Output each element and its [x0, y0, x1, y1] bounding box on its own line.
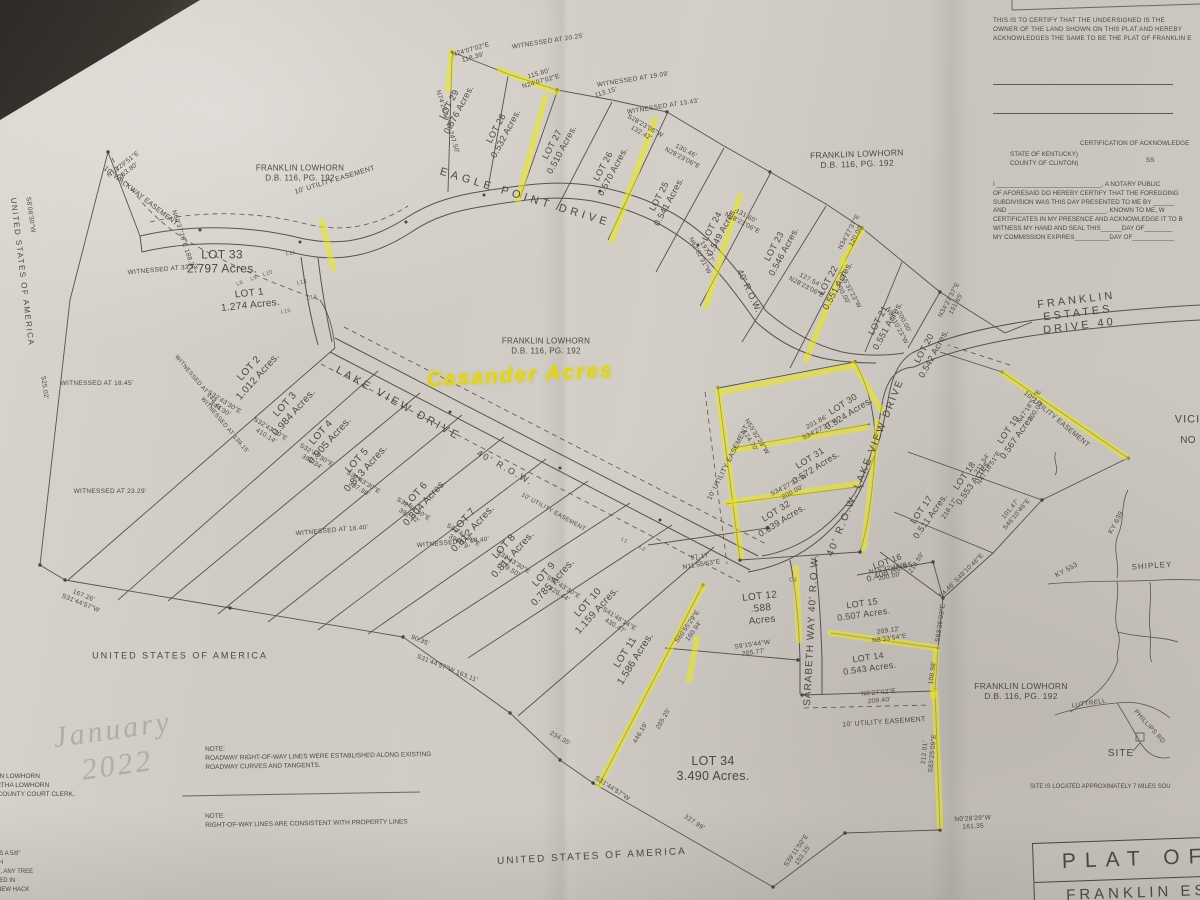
adjoiner-label-franklin-lowhorn: FRANKLIN LOWHORN D.B. 116, PG. 192 [502, 336, 590, 355]
adjoiner-label-franklin-lowhorn: FRANKLIN LOWHORN D.B. 116, PG. 192 [974, 681, 1068, 701]
note-roadway-row: NOTE: ROADWAY RIGHT-OF-WAY LINES WERE ES… [205, 741, 432, 773]
road-lines [140, 183, 1200, 695]
owner-certification-text: THIS IS TO CERTIFY THAT THE UNDERSIGNED … [993, 17, 1200, 44]
adjoiner-label-usa-southwest: UNITED STATES OF AMERICA [92, 651, 268, 662]
bearing-label: N6'27'02"E 209.40' [861, 688, 897, 707]
note-row-property: NOTE: RIGHT-OF-WAY LINES ARE CONSISTENT … [205, 808, 408, 830]
site-location-note: SITE IS LOCATED APPROXIMATELY 7 MILES SO… [1030, 783, 1200, 792]
plat-linework [0, 0, 1200, 900]
vicinity-subtitle: NO [1180, 435, 1196, 447]
lot-label-12: LOT 12.588 Acres [742, 589, 781, 628]
witness-label: WITNESSED AT 23.29' [74, 488, 147, 496]
signature-line [993, 113, 1173, 114]
lot-label-33: LOT 332.797 Acres. [187, 248, 257, 277]
title-plat-of: PLAT OF [1033, 837, 1200, 883]
plat-photo: LOT 11.274 Acres. LOT 21.012 Acres. LOT … [0, 0, 1200, 900]
adjoiner-label-franklin-lowhorn: FRANKLIN LOWHORN D.B. 116, PG. 192 [256, 163, 344, 182]
ss-label: SS [1146, 157, 1154, 166]
title-block: PLAT OF FRANKLIN ES [1032, 836, 1200, 900]
vicinity-label-site: SITE [1108, 748, 1134, 760]
acknowledgment-header: CERTIFICATION OF ACKNOWLEDGE [1080, 140, 1189, 149]
line-label: C3 [789, 578, 797, 585]
witness-label: WITNESSED AT 18.45' [61, 380, 134, 388]
lot-label-34: LOT 343.490 Acres. [676, 754, 749, 784]
vicinity-map-lines [1048, 452, 1200, 758]
adjoiner-label-franklin-lowhorn: FRANKLIN LOWHORN D.B. 116, PG. 192 [810, 147, 904, 171]
bearing-label: N0'28'29"W 161.35 [954, 814, 991, 831]
corner-text-fragment: S IS A 5/8" 5TH ED, ANY TREE ATED IN 3 N… [0, 850, 33, 895]
state-county-text: STATE OF KENTUCKY) COUNTY OF CLINTON) [1010, 151, 1078, 169]
vicinity-title: VICINITY [1175, 413, 1200, 426]
signature-line [993, 84, 1173, 85]
notary-certification-text: I ______________________________, A NOTA… [993, 181, 1200, 243]
